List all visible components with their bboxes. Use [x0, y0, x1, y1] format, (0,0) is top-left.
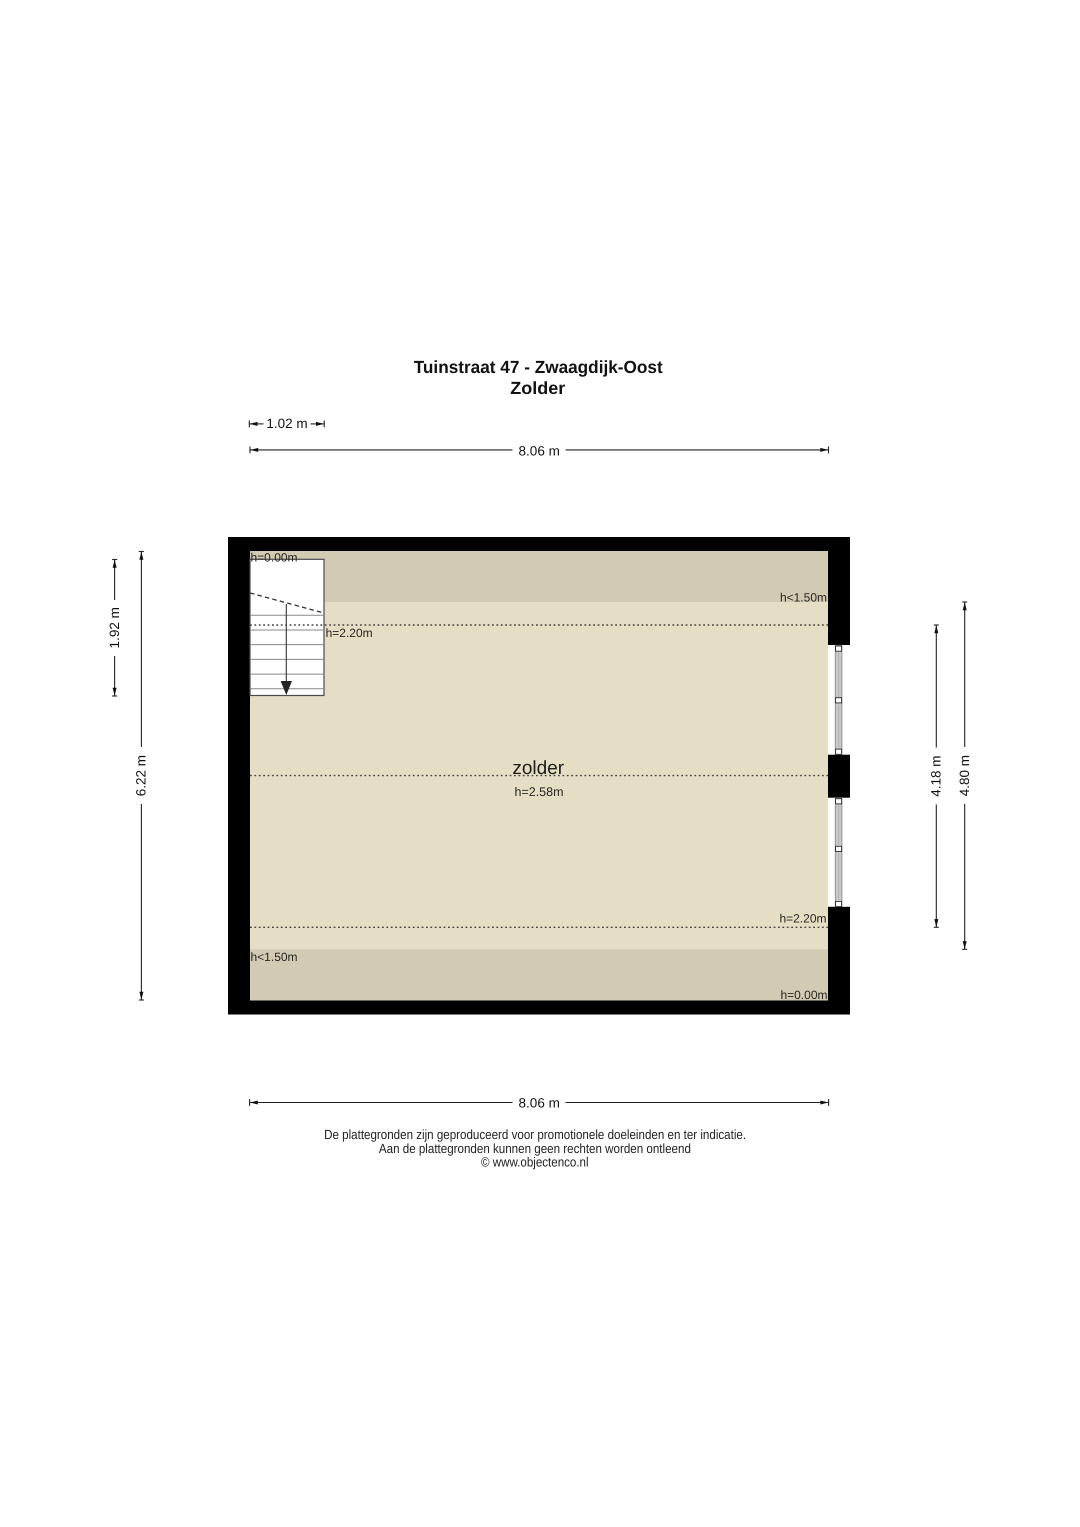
- svg-text:h=0.00m: h=0.00m: [251, 551, 298, 565]
- svg-text:h=2.58m: h=2.58m: [515, 785, 564, 799]
- svg-text:© www.objectenco.nl: © www.objectenco.nl: [481, 1155, 589, 1170]
- svg-text:4.18 m: 4.18 m: [929, 755, 944, 796]
- svg-text:1.92 m: 1.92 m: [107, 607, 122, 648]
- svg-text:h=2.20m: h=2.20m: [326, 626, 373, 640]
- svg-text:h=2.20m: h=2.20m: [779, 911, 826, 925]
- svg-text:6.22 m: 6.22 m: [134, 755, 149, 796]
- svg-text:zolder: zolder: [512, 758, 564, 779]
- svg-text:h<1.50m: h<1.50m: [780, 591, 827, 605]
- svg-text:4.80 m: 4.80 m: [957, 755, 972, 796]
- svg-text:8.06 m: 8.06 m: [519, 1095, 560, 1110]
- svg-text:h<1.50m: h<1.50m: [251, 950, 298, 964]
- svg-text:1.02 m: 1.02 m: [266, 416, 307, 431]
- svg-text:Tuinstraat 47 - Zwaagdijk-Oost: Tuinstraat 47 - Zwaagdijk-Oost: [414, 357, 663, 377]
- svg-text:8.06 m: 8.06 m: [519, 443, 560, 458]
- svg-text:Zolder: Zolder: [510, 378, 565, 398]
- svg-text:De plattegronden zijn geproduc: De plattegronden zijn geproduceerd voor …: [324, 1127, 746, 1142]
- svg-text:h=0.00m: h=0.00m: [780, 988, 827, 1002]
